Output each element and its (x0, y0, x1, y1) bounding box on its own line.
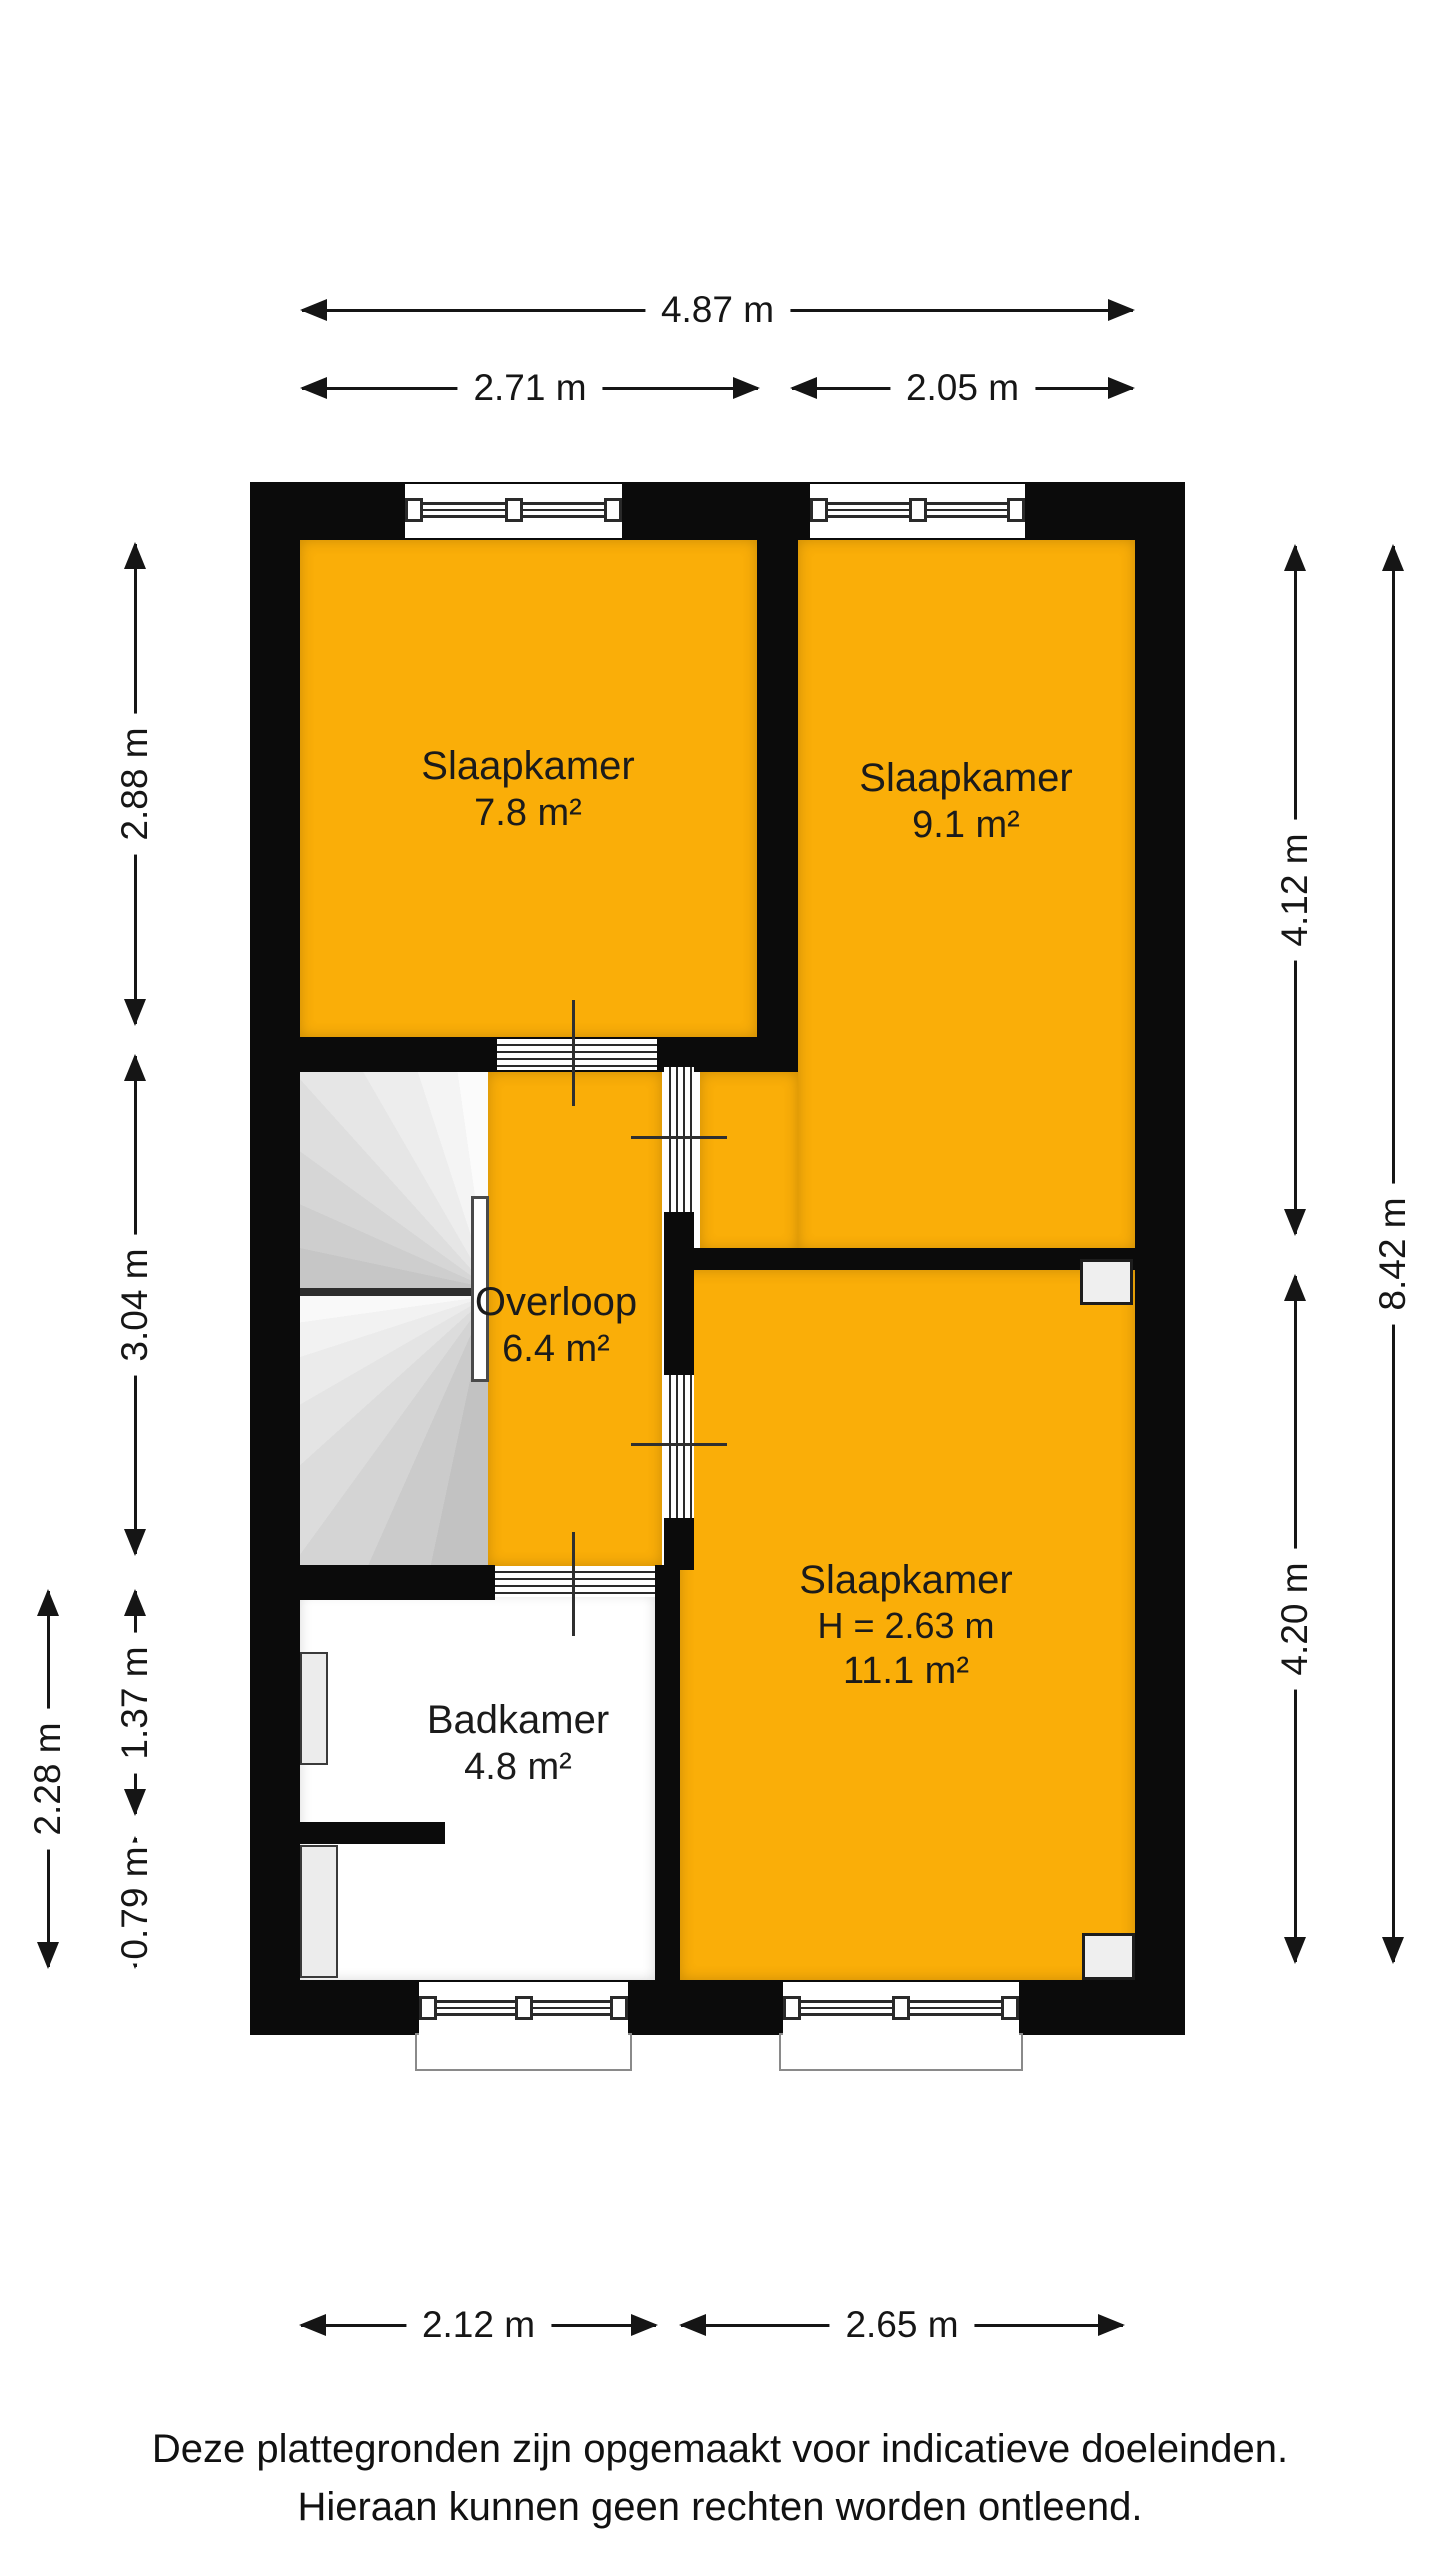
dimension-left-lower-outer: 2.28 m (34, 1589, 62, 1969)
window-frame-cap (1007, 498, 1025, 522)
door-slaapkamer-111 (664, 1375, 694, 1518)
window-bottom-left (419, 1982, 628, 2035)
room-name: Slaapkamer (333, 742, 723, 790)
window-frame-cap (892, 1996, 910, 2020)
arrow-up-icon (1284, 544, 1306, 571)
dimension-bottom-left: 2.12 m (299, 2311, 658, 2339)
dimension-value: 2.65 m (829, 2304, 974, 2346)
dimension-value: 8.42 m (1372, 1183, 1414, 1324)
room-area: 11.1 m² (711, 1648, 1101, 1694)
dimension-value: 2.88 m (114, 713, 156, 854)
staircase-upper-flight (300, 1072, 488, 1288)
door-slaapkamer-91 (664, 1067, 694, 1212)
room-ceiling-height: H = 2.63 m (711, 1604, 1101, 1648)
arrow-down-icon (124, 1789, 146, 1816)
dimension-value: 2.05 m (890, 367, 1035, 409)
dimension-top-right: 2.05 m (790, 374, 1135, 402)
window-bottom-right (783, 1982, 1019, 2035)
arrow-down-icon (1382, 1937, 1404, 1964)
dimension-top-left: 2.71 m (300, 374, 760, 402)
room-area: 6.4 m² (361, 1326, 751, 1372)
disclaimer-line-2: Hieraan kunnen geen rechten worden ontle… (0, 2478, 1440, 2536)
room-floor-slaapkamer-91-ext (700, 1072, 798, 1250)
arrow-right-icon (1108, 299, 1135, 321)
arrow-left-icon (300, 299, 327, 321)
window-frame-cap (810, 498, 828, 522)
window-sill-bottom-left (415, 2033, 632, 2071)
disclaimer-line-1: Deze plattegronden zijn opgemaakt voor i… (0, 2420, 1440, 2478)
badkamer-fixture-lower (300, 1845, 338, 1978)
arrow-up-icon (124, 542, 146, 569)
room-area: 9.1 m² (771, 802, 1161, 848)
door-slaapkamer-78 (497, 1039, 657, 1070)
wall-badkamer-stub (300, 1822, 445, 1844)
dimension-right-upper: 4.12 m (1281, 544, 1309, 1236)
dimension-value: 1.37 m (114, 1632, 156, 1773)
wall-between-91-111 (664, 1248, 1135, 1270)
door-tick-slaapkamer-111 (631, 1443, 727, 1446)
arrow-up-icon (124, 1589, 146, 1616)
arrow-up-icon (124, 1054, 146, 1081)
floor-plan-page: Slaapkamer 7.8 m² Slaapkamer 9.1 m² Over… (0, 0, 1440, 2560)
arrow-down-icon (1284, 1209, 1306, 1236)
arrow-left-icon (300, 377, 327, 399)
dimension-left-upper: 2.88 m (121, 542, 149, 1026)
wall-exterior-right (1135, 482, 1185, 2035)
dimension-value: 4.20 m (1274, 1548, 1316, 1689)
wall-exterior-bottom (250, 1980, 1185, 2035)
room-label-slaapkamer-91: Slaapkamer 9.1 m² (771, 754, 1161, 848)
dimension-right-total: 8.42 m (1379, 544, 1407, 1964)
arrow-up-icon (37, 1589, 59, 1616)
dimension-value: 3.04 m (114, 1234, 156, 1375)
arrow-up-icon (1382, 544, 1404, 571)
window-frame-cap (405, 498, 423, 522)
dimension-value: 2.28 m (27, 1708, 69, 1849)
window-frame-cap (505, 498, 523, 522)
room-area: 7.8 m² (333, 790, 723, 836)
door-badkamer (495, 1566, 655, 1597)
dimension-value: 0.79 m (114, 1842, 156, 1963)
arrow-down-icon (1284, 1937, 1306, 1964)
door-tick-slaapkamer-78 (572, 1000, 575, 1106)
dimension-top-total: 4.87 m (300, 296, 1135, 324)
dimension-value: 4.12 m (1274, 819, 1316, 960)
room-label-badkamer: Badkamer 4.8 m² (323, 1696, 713, 1790)
window-sill-bottom-right (779, 2033, 1023, 2071)
room-area: 4.8 m² (323, 1744, 713, 1790)
arrow-right-icon (1098, 2314, 1125, 2336)
room-name: Slaapkamer (771, 754, 1161, 802)
arrow-down-icon (124, 1529, 146, 1556)
arrow-left-icon (679, 2314, 706, 2336)
arrow-down-icon (124, 999, 146, 1026)
wall-exterior-left (250, 482, 300, 2035)
dimension-value: 2.12 m (406, 2304, 551, 2346)
arrow-up-icon (1284, 1274, 1306, 1301)
arrow-right-icon (1108, 377, 1135, 399)
room-floor-slaapkamer-91 (798, 540, 1135, 1250)
dimension-bottom-right: 2.65 m (679, 2311, 1125, 2339)
window-top-left (405, 484, 622, 538)
room-name: Overloop (361, 1278, 751, 1326)
wall-exterior-top (250, 482, 1185, 540)
dimension-value: 2.71 m (457, 367, 602, 409)
window-frame-cap (419, 1996, 437, 2020)
window-frame-cap (610, 1996, 628, 2020)
room-label-slaapkamer-111: Slaapkamer H = 2.63 m 11.1 m² (711, 1556, 1101, 1694)
door-tick-badkamer (572, 1532, 575, 1636)
window-frame-cap (604, 498, 622, 522)
window-frame-cap (515, 1996, 533, 2020)
room-label-overloop: Overloop 6.4 m² (361, 1278, 751, 1372)
window-top-right (810, 484, 1025, 538)
arrow-down-icon (37, 1942, 59, 1969)
door-tick-slaapkamer-91 (631, 1136, 727, 1139)
room-name: Slaapkamer (711, 1556, 1101, 1604)
dimension-left-lower-inner-lower: 0.79 m (121, 1836, 149, 1969)
window-frame-cap (909, 498, 927, 522)
dimension-left-lower-inner-upper: 1.37 m (121, 1589, 149, 1816)
arrow-left-icon (299, 2314, 326, 2336)
duct-niche-upper (1080, 1259, 1133, 1305)
window-frame-cap (783, 1996, 801, 2020)
room-label-slaapkamer-78: Slaapkamer 7.8 m² (333, 742, 723, 836)
dimension-value: 4.87 m (645, 289, 790, 331)
duct-niche-lower (1082, 1933, 1135, 1980)
arrow-right-icon (631, 2314, 658, 2336)
dimension-right-lower: 4.20 m (1281, 1274, 1309, 1964)
wall-badkamer-top (300, 1565, 495, 1600)
arrow-left-icon (790, 377, 817, 399)
room-name: Badkamer (323, 1696, 713, 1744)
dimension-left-middle: 3.04 m (121, 1054, 149, 1556)
arrow-right-icon (733, 377, 760, 399)
window-frame-cap (1001, 1996, 1019, 2020)
